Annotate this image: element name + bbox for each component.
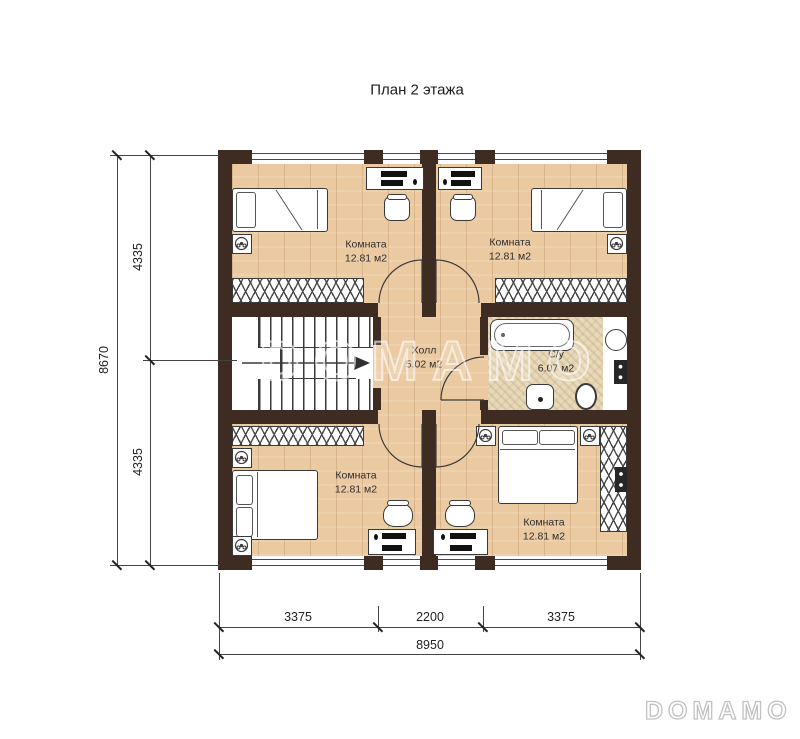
chair-br <box>445 502 475 527</box>
pillow <box>236 192 256 228</box>
keyboard-icon <box>381 180 403 186</box>
pillow <box>539 430 575 445</box>
dim-bottom-total: 8950 <box>416 638 444 652</box>
bathtub-inner <box>494 323 570 347</box>
stair-flight-lower <box>258 379 373 410</box>
wall-mid-lower-right <box>481 410 627 424</box>
mouse-icon <box>374 534 378 540</box>
dimension-line-left-total <box>117 155 118 565</box>
fan-icon <box>607 234 627 254</box>
wall-bathroom-2 <box>480 400 488 410</box>
window-bottom-right <box>495 556 607 570</box>
room-label-bedroom-bl: Комната 12.81 м2 <box>335 469 377 496</box>
mouse-icon <box>413 179 417 185</box>
stair-flight-upper <box>258 317 373 348</box>
mouse-icon <box>441 534 445 540</box>
wardrobe-bl <box>232 426 364 446</box>
room-label-bedroom-br: Комната 12.81 м2 <box>523 516 565 543</box>
desk-br <box>433 529 488 555</box>
bed-double-bl <box>232 470 318 540</box>
room-label-hall: Холл 5.02 м2 <box>406 344 442 371</box>
monitor-icon <box>451 171 475 177</box>
bed-single-tr <box>531 188 627 232</box>
bed-single-tl <box>232 188 328 232</box>
pedestal-sink <box>526 384 554 410</box>
extension-line <box>110 155 220 156</box>
monitor-icon <box>450 533 476 539</box>
dim-bottom-right: 3375 <box>547 610 575 624</box>
wall-stair-hall-1 <box>373 317 381 345</box>
bathtub <box>490 319 574 351</box>
room-label-bathroom: С/у 6.07 м2 <box>538 348 574 375</box>
chair-tr <box>450 196 476 221</box>
chair-bl <box>383 502 413 527</box>
window-top-left <box>252 150 364 164</box>
wall-partition-top <box>422 164 436 303</box>
toilet <box>575 383 597 410</box>
monitor-icon <box>382 533 406 539</box>
extension-line <box>219 573 220 660</box>
wall-mid-lower-left <box>232 410 378 424</box>
desk-bl <box>368 529 416 555</box>
blanket-line <box>257 472 258 537</box>
wall-stair-hall-2 <box>373 388 381 410</box>
dimension-line-bottom-parts <box>219 627 641 628</box>
floor-plan: Комната 12.81 м2 Комната 12.81 м2 Холл 5… <box>218 150 641 570</box>
window-top-center-left <box>383 150 420 164</box>
floor-plan-page: План 2 этажа <box>0 0 800 739</box>
bedroom-appliance <box>615 467 627 492</box>
dim-left-bottom: 4335 <box>131 448 145 476</box>
blanket-line <box>500 449 575 450</box>
mouse-icon <box>443 179 447 185</box>
wall-mid-upper-pier <box>422 303 436 317</box>
dim-left-total: 8670 <box>97 346 111 374</box>
dim-bottom-left: 3375 <box>284 610 312 624</box>
keyboard-icon <box>382 545 402 551</box>
bed-footboard-line <box>317 190 318 229</box>
watermark-corner: DOMAMO <box>645 697 792 726</box>
bathroom-appliance <box>614 360 627 384</box>
window-bottom-center-right <box>438 556 475 570</box>
fan-icon <box>232 448 252 468</box>
wall-right <box>627 150 641 570</box>
room-label-bedroom-tl: Комната 12.81 м2 <box>345 238 387 265</box>
room-label-bedroom-tr: Комната 12.81 м2 <box>489 236 531 263</box>
fan-icon <box>232 234 252 254</box>
dim-bottom-center: 2200 <box>416 610 444 624</box>
pillow <box>236 507 253 537</box>
wall-mid-upper-left <box>232 303 378 317</box>
bed-double-br <box>498 426 578 504</box>
extension-line <box>640 573 641 660</box>
window-top-right <box>495 150 607 164</box>
wall-bathroom-1 <box>480 317 488 355</box>
extension-line <box>110 565 220 566</box>
wardrobe-tr <box>495 278 627 303</box>
bed-footboard-line <box>541 190 542 229</box>
chair-tl <box>384 196 410 221</box>
page-title: План 2 этажа <box>370 82 464 99</box>
round-sink <box>605 329 627 351</box>
stair-flight-middle <box>280 348 356 379</box>
window-bottom-left <box>252 556 364 570</box>
extension-line <box>143 360 237 361</box>
sink-drain <box>538 397 543 402</box>
fan-icon <box>232 536 252 556</box>
keyboard-icon <box>451 180 471 186</box>
dimension-line-bottom-total <box>219 654 641 655</box>
desk-tl <box>366 167 424 190</box>
dim-left-top: 4335 <box>131 243 145 271</box>
pillow <box>502 430 538 445</box>
bathtub-drain <box>501 333 505 337</box>
fan-icon <box>580 426 600 446</box>
pillow <box>603 192 623 228</box>
wardrobe-tl <box>232 278 364 303</box>
fan-icon <box>476 426 496 446</box>
window-top-center-right <box>438 150 475 164</box>
wall-mid-lower-pier <box>422 410 436 424</box>
window-bottom-center-left <box>383 556 420 570</box>
wall-mid-upper-right <box>481 303 627 317</box>
keyboard-icon <box>450 545 472 551</box>
pillow <box>236 475 253 505</box>
monitor-icon <box>381 171 407 177</box>
desk-tr <box>438 167 482 190</box>
